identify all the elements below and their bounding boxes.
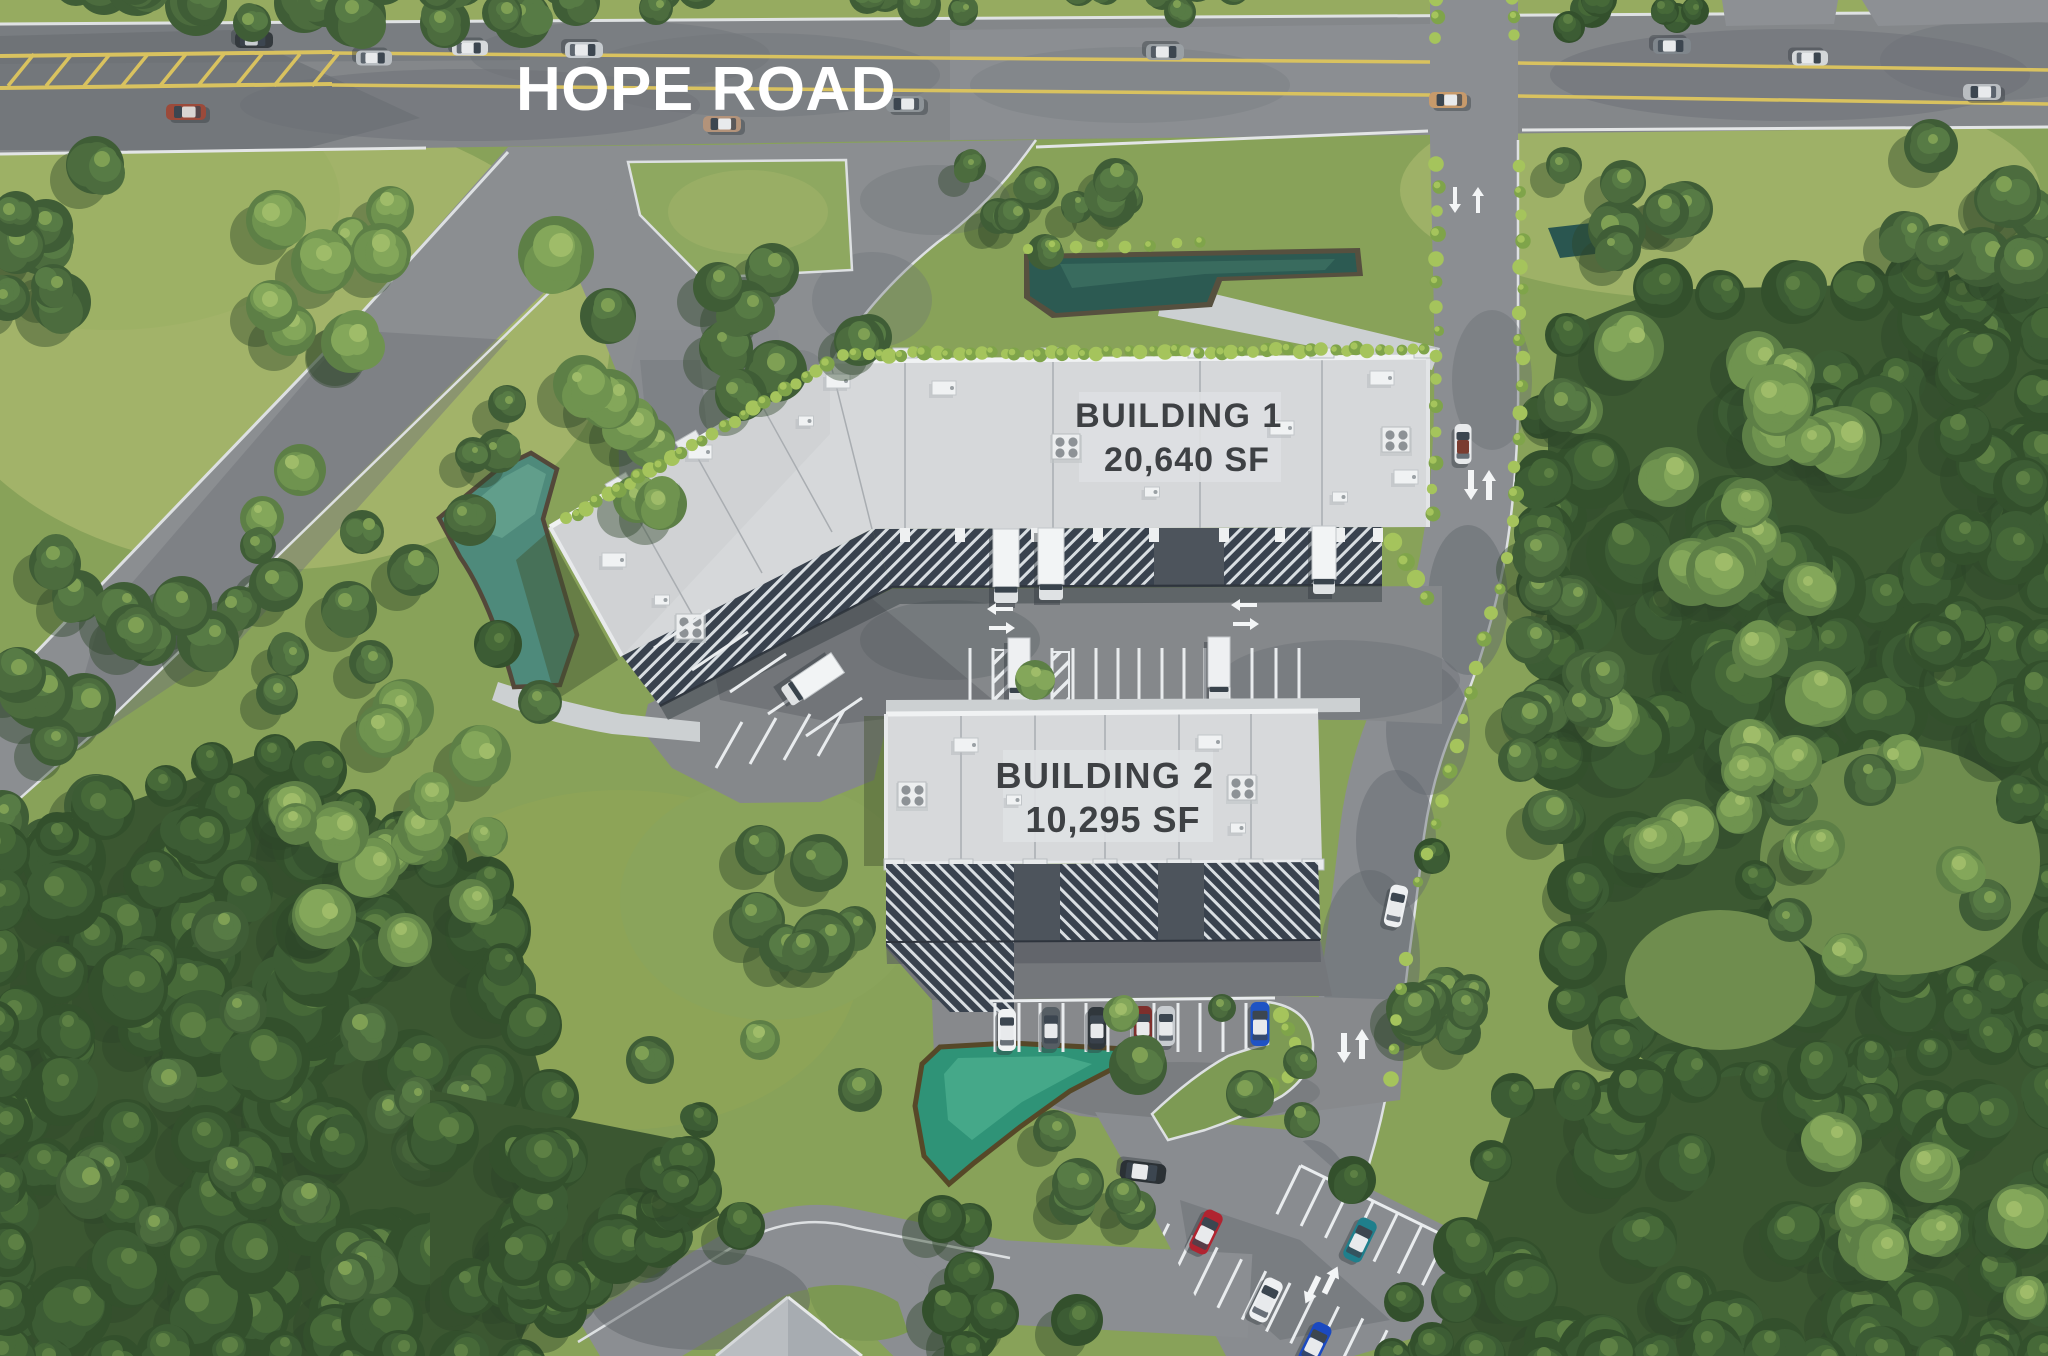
svg-text:10,295 SF: 10,295 SF <box>1025 799 1200 840</box>
svg-text:20,640 SF: 20,640 SF <box>1104 441 1270 479</box>
svg-text:BUILDING 2: BUILDING 2 <box>995 755 1214 796</box>
svg-text:BUILDING 1: BUILDING 1 <box>1075 397 1283 435</box>
